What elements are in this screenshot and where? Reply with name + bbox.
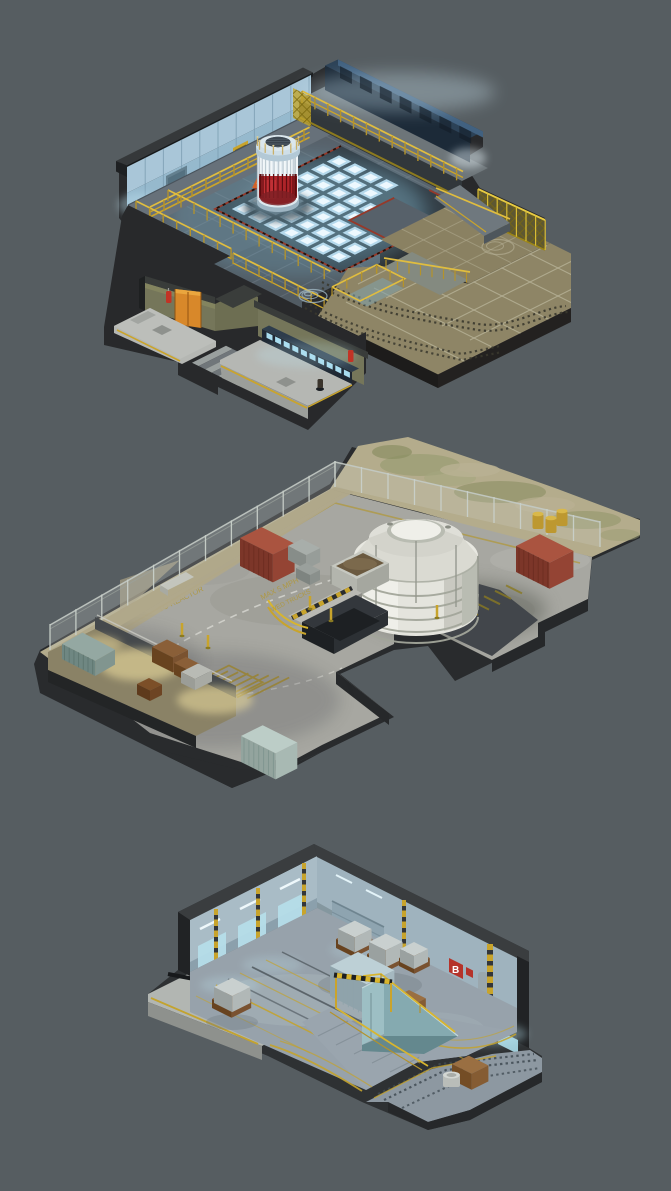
svg-text:B: B — [452, 965, 459, 976]
